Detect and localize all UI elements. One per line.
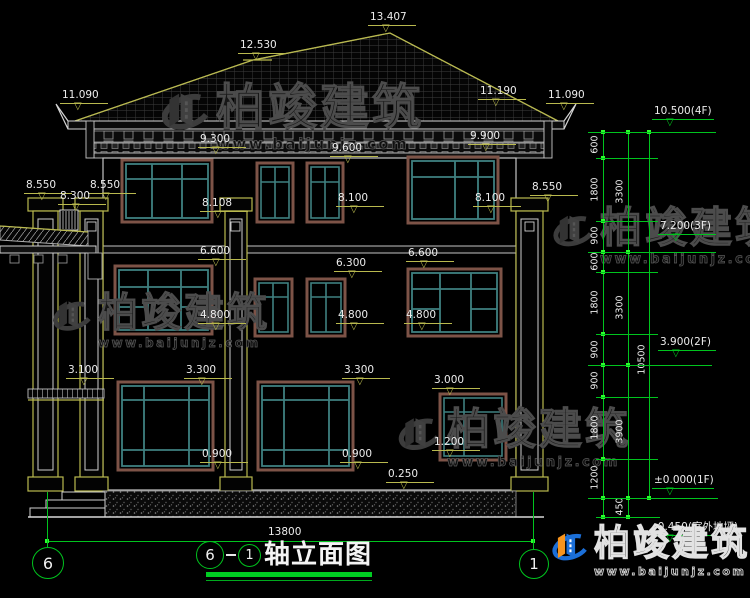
- minor-level-line: [596, 517, 660, 518]
- level-marker: 10.500(4F)▽: [652, 106, 714, 120]
- level-marker: 6.600▽: [406, 248, 454, 262]
- title-axis-bubble-6: 6: [196, 541, 224, 569]
- drawing-title: 6 1 轴立面图: [196, 541, 372, 569]
- level-marker: 8.100▽: [473, 193, 521, 207]
- level-marker: 3.100▽: [66, 365, 114, 379]
- axis-leader: [533, 492, 534, 549]
- level-marker: 0.900▽: [340, 449, 388, 463]
- level-marker: 8.300▽: [58, 191, 106, 205]
- level-marker: 9.900▽: [468, 131, 516, 145]
- level-marker: 6.600▽: [198, 246, 246, 260]
- level-marker: 6.300▽: [334, 258, 382, 272]
- level-marker: 8.108▽: [200, 198, 248, 212]
- axis-leader: [47, 492, 48, 547]
- minor-level-line: [596, 334, 658, 335]
- title-underline: [206, 572, 372, 577]
- level-marker: 9.300▽: [198, 134, 246, 148]
- level-line: [588, 252, 716, 253]
- annotation-layer: 13.407▽12.530▽11.090▽11.190▽11.090▽9.300…: [0, 0, 750, 598]
- dim-label: 3300: [615, 278, 626, 338]
- level-marker: 11.090▽: [60, 90, 108, 104]
- minor-level-line: [596, 221, 658, 222]
- dim-chain-line: [649, 132, 650, 498]
- level-marker: 11.190▽: [478, 86, 526, 100]
- minor-level-line: [596, 272, 658, 273]
- dim-label: 10500: [637, 330, 648, 390]
- drawing-canvas: 柏竣建筑www.baijunjz.com柏竣建筑www.baijunjz.com…: [0, 0, 750, 598]
- level-marker: 0.900▽: [200, 449, 248, 463]
- level-marker: 4.800▽: [404, 310, 452, 324]
- level-marker: 1.200▽: [432, 437, 480, 451]
- level-marker: 0.250▽: [386, 469, 434, 483]
- level-marker: ±0.000(1F)▽: [652, 475, 714, 489]
- title-underline-thin: [206, 580, 372, 581]
- level-marker: 3.300▽: [342, 365, 390, 379]
- level-marker: 8.100▽: [336, 193, 384, 207]
- axis-bubble: 6: [32, 547, 64, 579]
- title-text: 轴立面图: [264, 542, 372, 568]
- width-dim-label: 13800: [268, 526, 301, 538]
- level-marker: 4.800▽: [336, 310, 384, 324]
- minor-level-line: [596, 459, 658, 460]
- dim-label: 3900: [615, 402, 626, 462]
- level-marker: 7.200(3F)▽: [658, 221, 716, 235]
- level-marker: -0.450(室外地坪)▽: [652, 522, 738, 536]
- dim-label: 3300: [615, 162, 626, 222]
- level-marker: 12.530▽: [238, 40, 286, 54]
- level-marker: 3.000▽: [432, 375, 480, 389]
- level-marker: 3.900(2F)▽: [658, 337, 716, 351]
- level-line: [588, 132, 716, 133]
- level-marker: 4.800▽: [198, 310, 246, 324]
- minor-level-line: [596, 158, 658, 159]
- level-marker: 9.600▽: [330, 143, 378, 157]
- level-marker: 8.550▽: [530, 182, 578, 196]
- level-marker: 3.300▽: [184, 365, 232, 379]
- minor-level-line: [596, 397, 658, 398]
- level-line: [588, 498, 718, 499]
- level-marker: 11.090▽: [546, 90, 594, 104]
- level-marker: 13.407▽: [368, 12, 416, 26]
- title-dash: [226, 554, 236, 556]
- title-axis-bubble-1: 1: [238, 544, 261, 567]
- dim-label: 450: [615, 477, 626, 537]
- axis-bubble: 1: [519, 549, 549, 579]
- level-line: [588, 365, 712, 366]
